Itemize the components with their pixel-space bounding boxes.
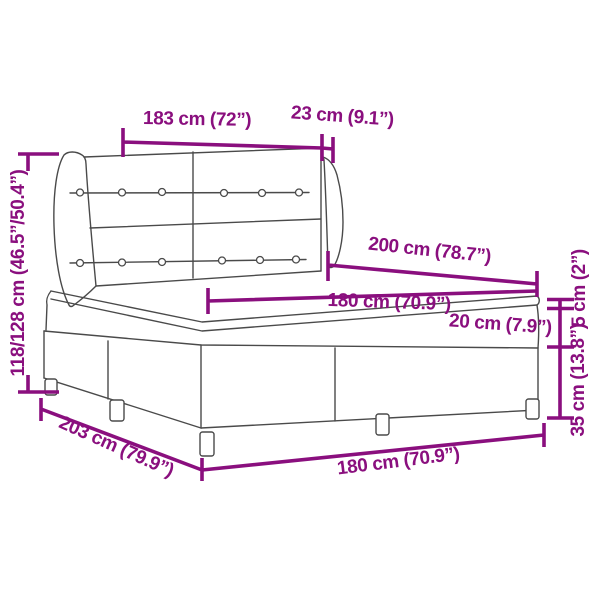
tuft-button xyxy=(293,256,300,263)
dim-wing-depth: 23 cm (9.1”) xyxy=(290,102,394,163)
tuft-button xyxy=(257,257,264,264)
tuft-button xyxy=(119,189,126,196)
bed-dimension-diagram: 183 cm (72”) 23 cm (9.1”) 118/128 cm (46… xyxy=(0,0,600,600)
tuft-button xyxy=(221,190,228,197)
tuft-button xyxy=(159,189,166,196)
base-top-edge xyxy=(44,331,538,348)
dim-label-overall-height: 118/128 cm (46.5”/50.4”) xyxy=(8,169,29,376)
bed-leg xyxy=(376,414,389,435)
tuft-button xyxy=(77,189,84,196)
bed-leg xyxy=(110,400,124,421)
dim-label-base-length: 203 cm (79.9”) xyxy=(56,412,177,481)
dim-line xyxy=(123,128,322,161)
headboard-right-wing xyxy=(323,157,343,268)
bed-drawing xyxy=(44,148,539,456)
dim-mattress-length: 200 cm (78.7”) xyxy=(328,234,537,297)
bed-leg xyxy=(200,432,214,456)
headboard-face-bottom-edge xyxy=(96,271,321,286)
dim-mattress-width: 180 cm (70.9”) xyxy=(208,288,537,315)
dim-label-mattress-length: 200 cm (78.7”) xyxy=(367,234,492,268)
tuft-button xyxy=(259,190,266,197)
dim-label-mattress-thickness: 20 cm (7.9”) xyxy=(448,310,552,338)
dim-label-pillowtop-thickness: 5 cm (2”) xyxy=(569,249,590,327)
dimension-annotations: 183 cm (72”) 23 cm (9.1”) 118/128 cm (46… xyxy=(8,102,590,481)
bed-leg xyxy=(526,399,539,419)
headboard-horizontal-seam xyxy=(90,219,321,228)
stitch-line-row1 xyxy=(70,193,309,194)
dim-label-base-height: 35 cm (13.8”) xyxy=(568,323,589,436)
tuft-button xyxy=(159,259,166,266)
tuft-button xyxy=(77,260,84,267)
headboard xyxy=(54,148,343,307)
tuft-button xyxy=(296,189,303,196)
base-bottom-right-edge xyxy=(201,410,538,428)
dim-label-mattress-width: 180 cm (70.9”) xyxy=(327,290,451,315)
stitch-line-row2 xyxy=(70,260,306,264)
headboard-left-wing xyxy=(54,152,96,307)
dim-label-wing-depth: 23 cm (9.1”) xyxy=(290,102,394,130)
headboard-face-top-edge xyxy=(84,148,322,157)
dim-base-width: 180 cm (70.9”) xyxy=(202,423,544,479)
tuft-button xyxy=(119,259,126,266)
dim-label-headboard-width: 183 cm (72”) xyxy=(143,108,252,131)
mattress-left-end xyxy=(46,291,51,330)
tuft-button xyxy=(219,257,226,264)
dim-overall-height: 118/128 cm (46.5”/50.4”) xyxy=(8,154,59,392)
